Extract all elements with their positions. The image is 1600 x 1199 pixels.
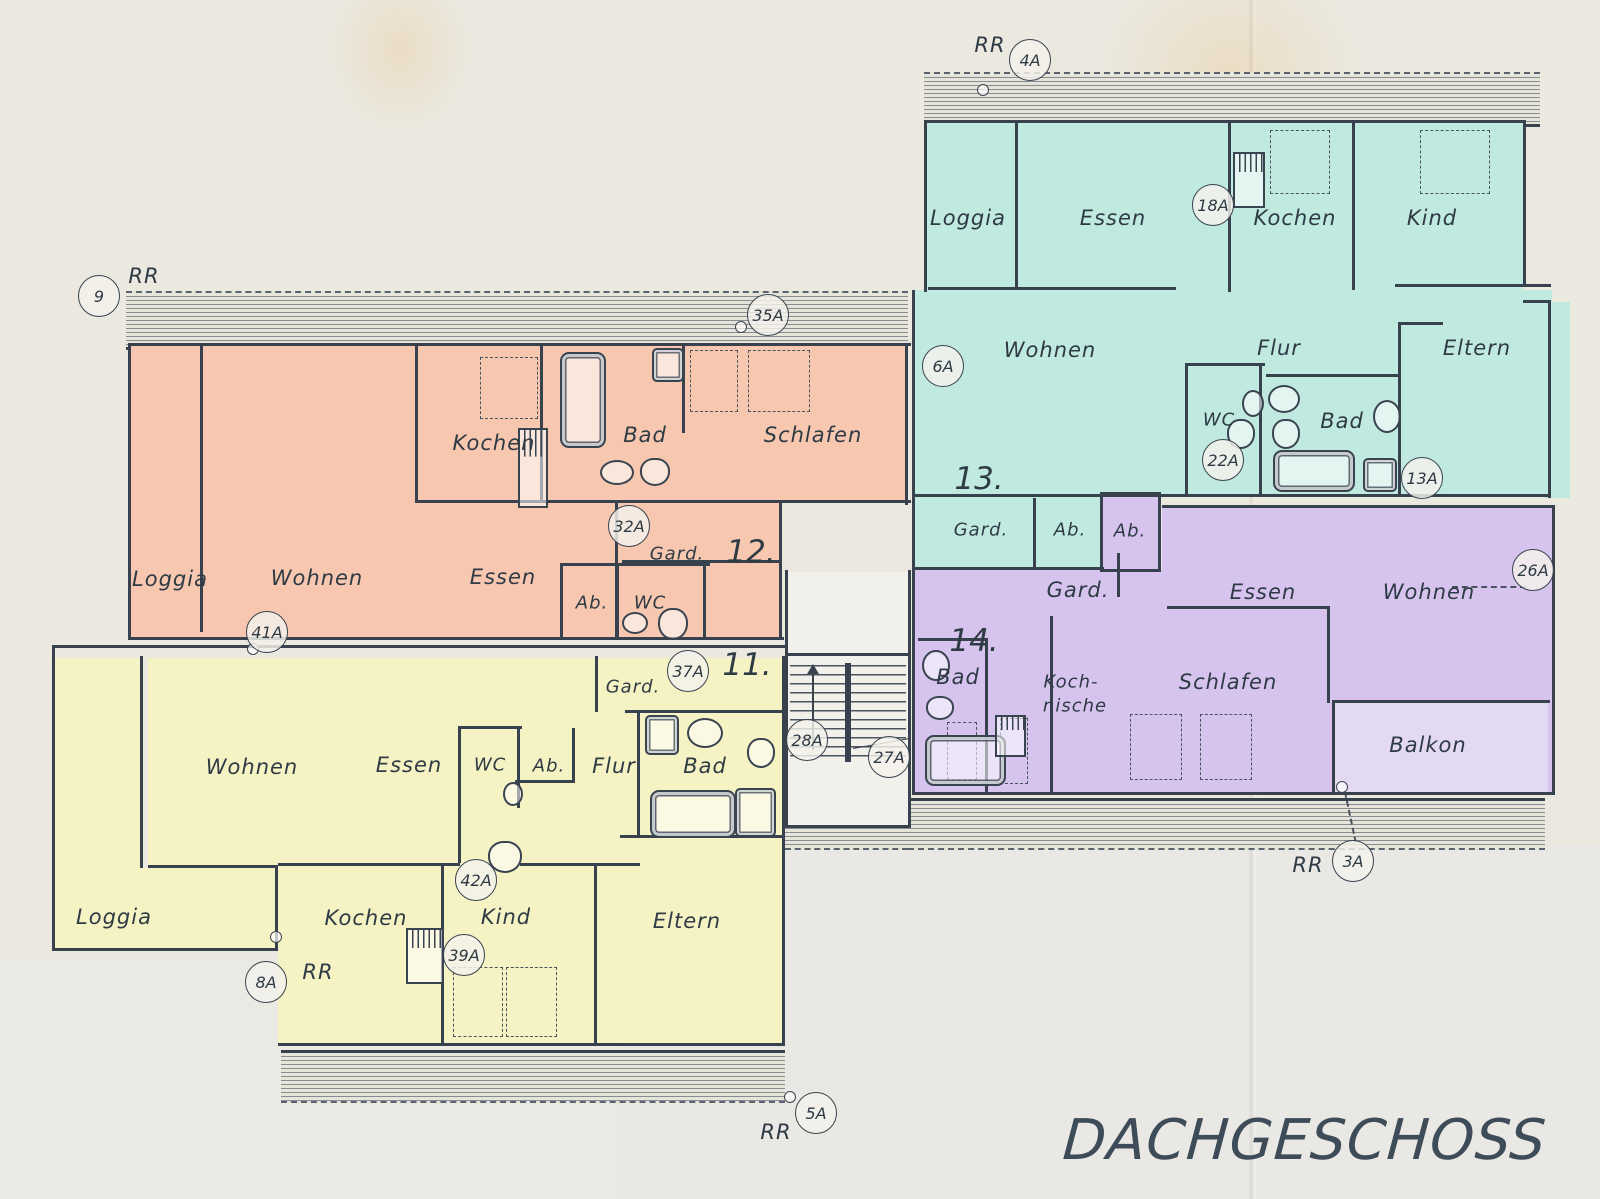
exterior-wall-hatch-apt12 (126, 291, 908, 350)
wall (1523, 284, 1551, 287)
wall (520, 863, 640, 866)
wall (1185, 363, 1265, 366)
reference-marker-37a: 37A (667, 650, 709, 692)
apartment-number-13: 13. (954, 461, 1003, 497)
toilet-fixture (1272, 419, 1300, 449)
wall (1167, 606, 1330, 609)
room-label-kind: Kind (1407, 206, 1457, 230)
wall (148, 865, 278, 868)
room-label-gard: Gard. (606, 677, 661, 698)
exterior-wall-hatch-apt14 (908, 798, 1545, 850)
room-label-kochen: Kochen (1254, 206, 1337, 230)
room-label-eltern: Eltern (1443, 336, 1511, 360)
room-label-wohnen: Wohnen (1383, 580, 1475, 604)
room-label-essen: Essen (1080, 206, 1146, 230)
sink-fixture (735, 788, 776, 837)
wall (779, 500, 782, 640)
room-label-wohnen: Wohnen (1004, 338, 1096, 362)
wall (1033, 498, 1036, 569)
room-label-flur: Flur (1257, 336, 1301, 360)
wall (1352, 122, 1355, 290)
washbasin-fixture (687, 718, 723, 748)
reference-marker-3a: 3A (1332, 840, 1374, 882)
reference-marker-6a: 6A (922, 345, 964, 387)
room-label-wc: WC (634, 593, 666, 614)
wall (908, 570, 911, 828)
bathtub-fixture (1273, 450, 1355, 492)
wall (1185, 365, 1188, 496)
room-label-ab: Ab. (533, 756, 565, 777)
dashed-furniture (1130, 714, 1182, 780)
wall (1117, 553, 1120, 597)
washbasin-fixture (1373, 400, 1401, 433)
wall (140, 656, 143, 868)
wall (594, 866, 597, 1046)
room-label-loggia: Loggia (930, 206, 1006, 230)
wall (928, 287, 1176, 290)
wall (1548, 300, 1551, 498)
rr-label: RR (302, 960, 333, 984)
washbasin-fixture (600, 460, 634, 485)
wall (595, 656, 598, 712)
room-label-essen: Essen (1230, 580, 1296, 604)
rr-label: RR (974, 33, 1005, 57)
wall (703, 563, 706, 639)
reference-marker-28a: 28A (786, 719, 828, 761)
stair-arrow-head (807, 664, 819, 674)
exterior-wall-hatch-apt13 (924, 72, 1540, 127)
room-label-kind: Kind (481, 905, 531, 929)
apartment-number-14: 14. (949, 623, 998, 659)
dashed-furniture (480, 357, 538, 419)
wall (128, 637, 784, 640)
reference-marker-35a: 35A (747, 294, 789, 336)
wall (1158, 492, 1161, 572)
wall (278, 863, 460, 866)
reference-marker-26a: 26A (1512, 549, 1554, 591)
reference-marker-32a: 32A (608, 505, 650, 547)
room-label-kochnische-2: nische (1043, 696, 1107, 717)
reference-marker-8a: 8A (245, 961, 287, 1003)
wall (1332, 700, 1550, 703)
room-label-bad: Bad (683, 754, 727, 778)
reference-marker-5a: 5A (795, 1092, 837, 1134)
dashed-furniture (1270, 130, 1330, 194)
wall (560, 563, 563, 639)
reference-marker-42a: 42A (455, 859, 497, 901)
wall (1552, 505, 1555, 795)
wall (515, 780, 575, 783)
room-label-bad: Bad (936, 665, 980, 689)
wall (1015, 122, 1018, 290)
room-label-kochnische-1: Koch- (1044, 672, 1099, 693)
dashed-furniture (453, 967, 503, 1037)
washbasin-fixture (1268, 385, 1300, 413)
toilet-fixture (640, 458, 670, 486)
room-label-kochen: Kochen (453, 431, 536, 455)
dashed-furniture (1420, 130, 1490, 194)
wall (924, 122, 927, 292)
room-label-wohnen: Wohnen (206, 755, 298, 779)
bathtub-fixture (560, 352, 606, 448)
room-label-ab: Ab. (576, 593, 608, 614)
wall (128, 345, 131, 640)
bathtub-fixture (925, 735, 1006, 786)
pipe-connection-dot (977, 84, 989, 96)
reference-marker-41a: 41A (246, 611, 288, 653)
rr-label: RR (1292, 853, 1323, 877)
washbasin-fixture (622, 612, 648, 634)
room-label-gard: Gard. (650, 544, 705, 565)
stove-fixture (406, 928, 444, 984)
rr-label: RR (760, 1120, 791, 1144)
room-label-wohnen: Wohnen (271, 566, 363, 590)
paper-stain (330, 0, 470, 130)
wall (1523, 300, 1550, 303)
apartment-number-11: 11. (722, 647, 771, 683)
wall (912, 290, 915, 572)
room-label-bad: Bad (1320, 409, 1364, 433)
sink-fixture (652, 348, 684, 382)
toilet-fixture (747, 738, 775, 768)
wall (637, 710, 640, 838)
wall (52, 645, 55, 951)
room-label-bad: Bad (623, 423, 667, 447)
dashed-furniture (748, 350, 810, 412)
wall (52, 645, 785, 648)
dashed-furniture (690, 350, 738, 412)
wall (912, 792, 1555, 795)
stove-fixture (1233, 152, 1265, 208)
washbasin-fixture (1242, 390, 1264, 417)
room-label-schlafen: Schlafen (1179, 670, 1278, 694)
wall (1100, 492, 1161, 495)
room-label-schlafen: Schlafen (764, 423, 863, 447)
wall (905, 345, 908, 505)
bathtub-fixture (650, 790, 736, 838)
room-label-flur: Flur (592, 754, 636, 778)
pipe-connection-dot (784, 1091, 796, 1103)
reference-marker-13a: 13A (1401, 457, 1443, 499)
wall (128, 343, 911, 346)
wall (458, 726, 461, 863)
wall (52, 948, 278, 951)
wall (785, 570, 788, 828)
washbasin-fixture (503, 782, 523, 806)
reference-marker-39a: 39A (443, 934, 485, 976)
room-label-gard: Gard. (1047, 578, 1110, 602)
wall (616, 566, 619, 639)
reference-marker-18a: 18A (1192, 184, 1234, 226)
pipe-connection-dot (270, 931, 282, 943)
floor-plan: Kochen Bad Schlafen Loggia Wohnen Essen … (0, 0, 1600, 1199)
wall (278, 1043, 785, 1046)
room-label-essen: Essen (376, 753, 442, 777)
room-label-ab: Ab. (1054, 520, 1086, 541)
room-label-eltern: Eltern (653, 909, 721, 933)
wall (572, 728, 575, 782)
wall (415, 345, 418, 502)
pipe-connection-dot (1336, 781, 1348, 793)
wall (1100, 569, 1161, 572)
rr-label: RR (128, 264, 159, 288)
dashed-furniture (1200, 714, 1252, 780)
dashed-furniture (506, 967, 557, 1037)
wall (1266, 374, 1401, 377)
wall (1395, 284, 1525, 287)
wall (1162, 505, 1555, 508)
wall (1259, 365, 1262, 496)
room-label-essen: Essen (470, 565, 536, 589)
wall (625, 710, 785, 713)
wall (912, 494, 1551, 497)
room-label-kochen: Kochen (325, 906, 408, 930)
wall (458, 726, 522, 729)
drawing-title: DACHGESCHOSS (1061, 1108, 1566, 1173)
reference-marker-4a: 4A (1009, 39, 1051, 81)
sink-fixture (645, 715, 679, 755)
wall (1100, 492, 1103, 572)
wall (1332, 700, 1335, 794)
apartment-number-12: 12. (726, 534, 775, 570)
wall (912, 570, 915, 795)
reference-marker-9: 9 (78, 275, 120, 317)
room-label-loggia: Loggia (132, 567, 208, 591)
sink-fixture (1363, 458, 1397, 492)
stove-fixture (995, 715, 1026, 757)
wall (912, 567, 1104, 570)
reference-marker-27a: 27A (868, 736, 910, 778)
room-label-wc: WC (474, 755, 506, 776)
wall (415, 500, 911, 503)
wall (787, 653, 909, 656)
wall (1398, 322, 1443, 325)
toilet-fixture (926, 696, 954, 720)
exterior-wall-hatch-apt11 (281, 1050, 785, 1103)
reference-marker-22a: 22A (1202, 439, 1244, 481)
room-label-ab: Ab. (1114, 521, 1146, 542)
wall (845, 663, 851, 762)
pipe-connection-dot (735, 321, 747, 333)
wall (1327, 606, 1330, 703)
room-label-balkon: Balkon (1389, 733, 1466, 757)
wall (787, 825, 909, 828)
room-label-gard: Gard. (954, 520, 1009, 541)
wall (1523, 120, 1526, 284)
room-label-loggia: Loggia (76, 905, 152, 929)
room-label-wc: WC (1203, 410, 1235, 431)
